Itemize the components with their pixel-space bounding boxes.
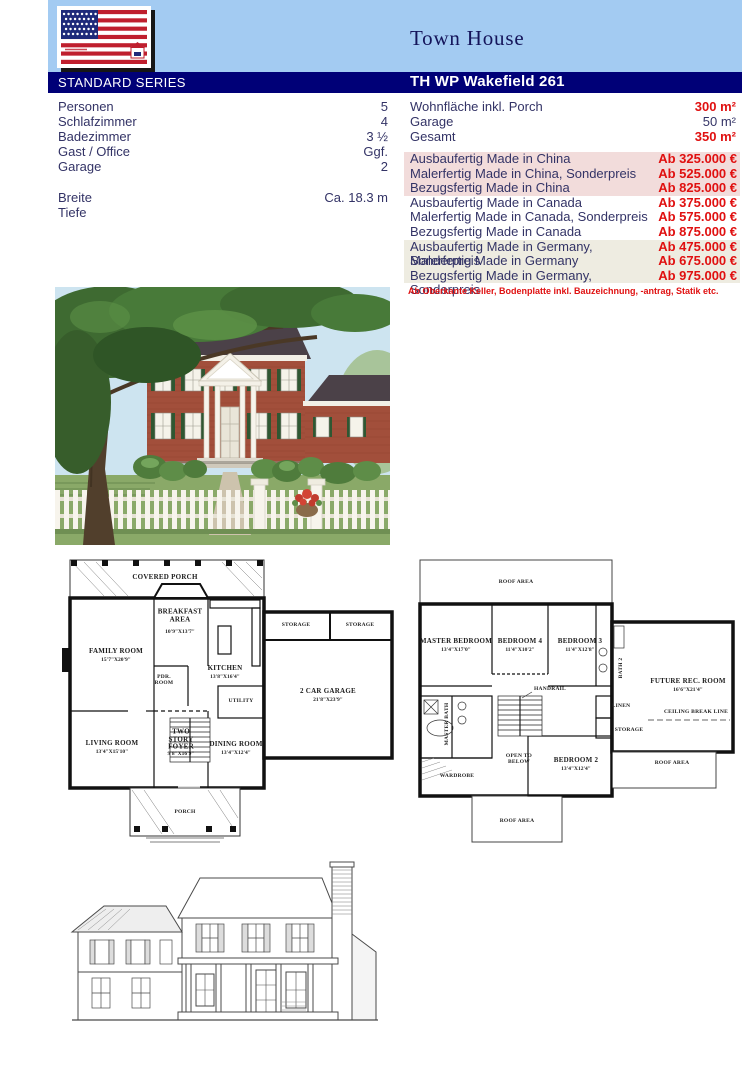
elevation-drawing <box>70 860 382 1035</box>
price-row: Malerfertig Made in China, SonderpreisAb… <box>404 167 740 182</box>
room-dim-dining: 13'4"X12'4" <box>221 750 251 756</box>
room-label-future-rec: FUTURE REC. ROOM <box>650 678 725 686</box>
header-band <box>48 0 742 72</box>
us-flag-logo <box>57 6 151 68</box>
ceiling-break-label: CEILING BREAK LINE <box>664 710 728 716</box>
spec-row: Tiefe <box>58 205 388 220</box>
room-dim-bed3: 11'4"X12'8" <box>565 647 594 653</box>
spec-value: 2 <box>381 159 388 174</box>
room-label-living: LIVING ROOM <box>86 740 139 748</box>
price-row: Bezugsfertig Made in Germany, Sonderprei… <box>404 269 740 284</box>
room-label-foyer: TWO STORY FOYER <box>161 729 201 752</box>
second-floor-drawing <box>400 556 742 846</box>
room-label-pdr: PDR. ROOM <box>151 675 177 687</box>
area-value: 50 m² <box>703 114 736 129</box>
room-label-storage: STORAGE <box>615 728 644 734</box>
price-row: Ausbaufertig Made in ChinaAb 325.000 € <box>404 152 740 167</box>
price-row: Bezugsfertig Made in CanadaAb 875.000 € <box>404 225 740 240</box>
roof-area-top-label: ROOF AREA <box>499 580 534 586</box>
spec-label: Badezimmer <box>58 129 131 144</box>
second-floor-plan: ROOF AREA MASTER BEDROOM 13'4"X17'0" BED… <box>400 556 742 846</box>
room-label-master-bath: MASTER BATH <box>445 703 451 746</box>
model-name: TH WP Wakefield 261 <box>410 73 565 90</box>
room-label-open-below: OPEN TO BELOW <box>505 754 533 766</box>
first-floor-drawing <box>58 556 395 846</box>
room-dim-master: 13'4"X17'0" <box>441 647 471 653</box>
area-label: Garage <box>410 114 453 129</box>
spec-row: Personen5 <box>58 99 388 114</box>
room-dim-foyer: 9'8"X16'9" <box>168 751 195 757</box>
room-dim-living: 13'4"X15'10" <box>96 749 128 755</box>
room-label-kitchen: KITCHEN <box>208 665 243 673</box>
room-label-linen: LINEN <box>612 704 631 710</box>
spec-label: Personen <box>58 99 114 114</box>
price-label: Ausbaufertig Made in Germany, Sonderprei… <box>410 240 658 255</box>
price-label: Ausbaufertig Made in Canada <box>410 196 582 211</box>
price-value: Ab 875.000 € <box>658 225 737 240</box>
house-painting <box>55 287 390 545</box>
spec-value: Ca. 18.3 m <box>324 190 388 205</box>
price-value: Ab 825.000 € <box>658 181 737 196</box>
us-flag-icon <box>61 10 147 64</box>
area-row: Gesamt350 m² <box>410 129 736 144</box>
price-label: Bezugsfertig Made in China <box>410 181 570 196</box>
roof-area-bottom-label: ROOF AREA <box>500 819 535 825</box>
room-dim-bed4: 11'4"X10'2" <box>505 647 534 653</box>
spec-label: Breite <box>58 190 92 205</box>
area-table: Wohnfläche inkl. Porch300 m² Garage50 m²… <box>410 99 736 144</box>
rear-elevation-drawing <box>70 860 382 1035</box>
spec-row: Garage2 <box>58 159 388 174</box>
room-dim-family: 15'7"X20'9" <box>101 657 131 663</box>
price-label: Ausbaufertig Made in China <box>410 152 570 167</box>
area-row: Garage50 m² <box>410 114 736 129</box>
price-value: Ab 325.000 € <box>658 152 737 167</box>
room-label-breakfast: BREAKFAST AREA <box>151 608 209 623</box>
room-label-utility: UTILITY <box>229 699 254 705</box>
series-label: STANDARD SERIES <box>58 75 186 90</box>
spec-row: Badezimmer3 ½ <box>58 129 388 144</box>
spec-label: Garage <box>58 159 101 174</box>
room-dim-breakfast: 10'9"X13'7" <box>165 629 195 635</box>
price-label: Bezugsfertig Made in Canada <box>410 225 581 240</box>
room-label-covered-porch: COVERED PORCH <box>132 574 197 582</box>
page-title: Town House <box>410 26 524 51</box>
room-dim-garage: 21'8"X23'9" <box>313 697 343 703</box>
price-row: Bezugsfertig Made in ChinaAb 825.000 € <box>404 181 740 196</box>
spec-row: Schlafzimmer4 <box>58 114 388 129</box>
spec-row: Gast / OfficeGgf. <box>58 144 388 159</box>
house-rendering <box>55 287 390 545</box>
spec-value: 5 <box>381 99 388 114</box>
spec-label: Schlafzimmer <box>58 114 137 129</box>
room-label-master: MASTER BEDROOM <box>420 638 492 646</box>
price-value: Ab 575.000 € <box>658 210 737 225</box>
price-value: Ab 375.000 € <box>658 196 737 211</box>
room-dim-bed2: 13'4"X12'4" <box>561 766 591 772</box>
price-row: Malerfertig Made in GermanyAb 675.000 € <box>404 254 740 269</box>
price-row: Ausbaufertig Made in Germany, Sonderprei… <box>404 240 740 255</box>
room-label-garage: 2 CAR GARAGE <box>300 688 356 696</box>
room-label-family: FAMILY ROOM <box>89 648 143 656</box>
area-label: Wohnfläche inkl. Porch <box>410 99 543 114</box>
brochure-page: Town House STANDARD SERIES TH WP Wakefie… <box>0 0 742 1084</box>
room-label-bed2: BEDROOM 2 <box>554 757 598 765</box>
room-label-storage-a: STORAGE <box>282 623 311 629</box>
price-value: Ab 675.000 € <box>658 254 737 269</box>
room-label-bed4: BEDROOM 4 <box>498 638 542 646</box>
handrail-label: HANDRAIL <box>534 687 566 693</box>
spec-table: Personen5 Schlafzimmer4 Badezimmer3 ½ Ga… <box>58 99 388 220</box>
price-row: Ausbaufertig Made in CanadaAb 375.000 € <box>404 196 740 211</box>
spec-label: Gast / Office <box>58 144 130 159</box>
room-dim-kitchen: 13'8"X16'4" <box>210 674 240 680</box>
spec-value: 4 <box>381 114 388 129</box>
roof-area-right-label: ROOF AREA <box>655 761 690 767</box>
spec-value: Ggf. <box>363 144 388 159</box>
price-value: Ab 475.000 € <box>658 240 737 255</box>
first-floor-plan: COVERED PORCH BREAKFAST AREA 10'9"X13'7"… <box>58 556 395 846</box>
room-dim-future-rec: 16'6"X21'4" <box>673 687 703 693</box>
room-label-dining: DINING ROOM <box>209 741 262 749</box>
room-label-wardrobe: WARDROBE <box>440 774 474 780</box>
spec-value: 3 ½ <box>366 129 388 144</box>
price-value: Ab 975.000 € <box>658 269 737 284</box>
price-label: Malerfertig Made in China, Sonderpreis <box>410 167 636 182</box>
price-table: Ausbaufertig Made in ChinaAb 325.000 € M… <box>404 152 740 296</box>
price-value: Ab 525.000 € <box>658 167 737 182</box>
area-value: 300 m² <box>695 99 736 114</box>
price-label: Malerfertig Made in Germany <box>410 254 578 269</box>
room-label-bed3: BEDROOM 3 <box>558 638 602 646</box>
price-label: Bezugsfertig Made in Germany, Sonderprei… <box>410 269 658 284</box>
area-value: 350 m² <box>695 129 736 144</box>
price-label: Malerfertig Made in Canada, Sonderpreis <box>410 210 648 225</box>
room-label-bath2: BATH 2 <box>619 658 625 679</box>
price-footnote: Ab Oberkante Keller, Bodenplatte inkl. B… <box>404 286 740 296</box>
room-label-porch: PORCH <box>174 810 195 816</box>
area-label: Gesamt <box>410 129 456 144</box>
room-label-storage-b: STORAGE <box>346 623 375 629</box>
title-bar: STANDARD SERIES TH WP Wakefield 261 <box>48 72 742 93</box>
spec-row: BreiteCa. 18.3 m <box>58 190 388 205</box>
price-row: Malerfertig Made in Canada, SonderpreisA… <box>404 210 740 225</box>
spec-label: Tiefe <box>58 205 86 220</box>
area-row: Wohnfläche inkl. Porch300 m² <box>410 99 736 114</box>
